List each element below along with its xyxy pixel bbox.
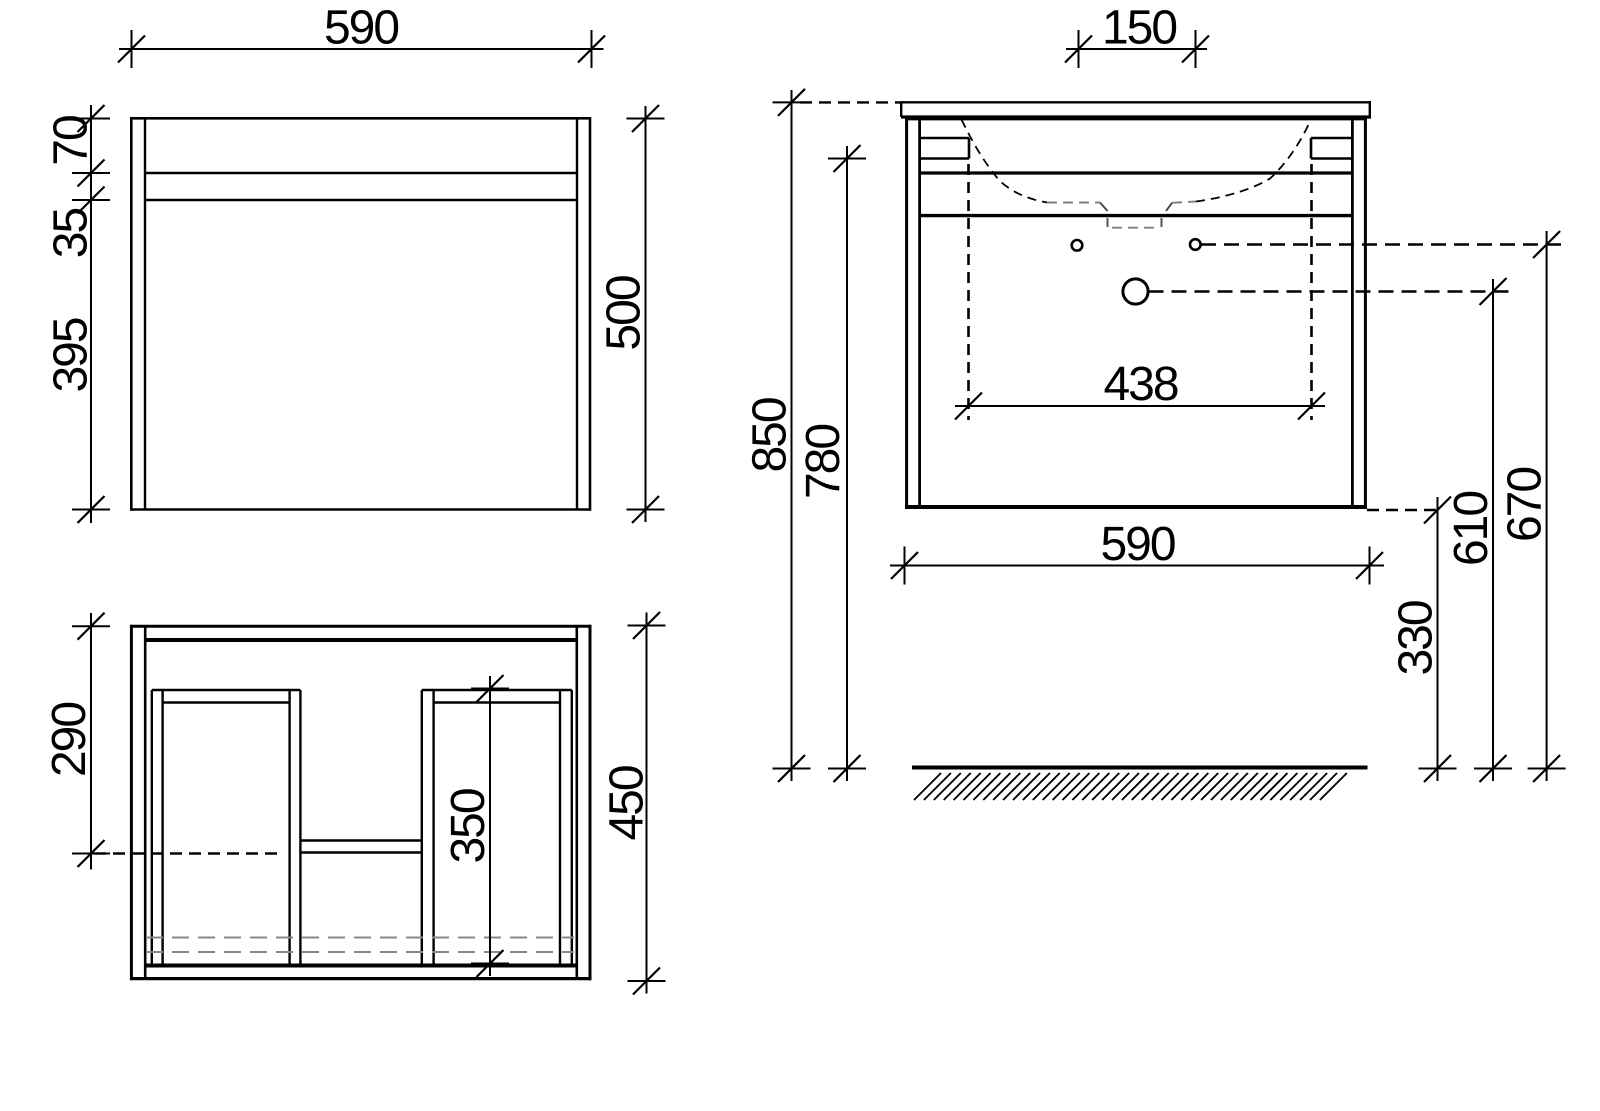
svg-text:610: 610 [1445,492,1498,566]
svg-text:590: 590 [324,2,398,55]
svg-text:670: 670 [1499,468,1552,542]
svg-text:780: 780 [797,425,850,499]
svg-text:590: 590 [1100,518,1174,571]
svg-text:290: 290 [43,703,96,777]
svg-text:330: 330 [1390,601,1443,675]
svg-text:438: 438 [1103,358,1177,411]
svg-text:35: 35 [45,209,98,259]
svg-text:850: 850 [744,398,797,472]
svg-text:150: 150 [1102,2,1176,55]
svg-text:500: 500 [598,276,651,350]
svg-text:450: 450 [601,766,654,840]
svg-text:395: 395 [45,318,98,392]
svg-text:70: 70 [45,116,98,166]
svg-text:350: 350 [442,789,495,863]
